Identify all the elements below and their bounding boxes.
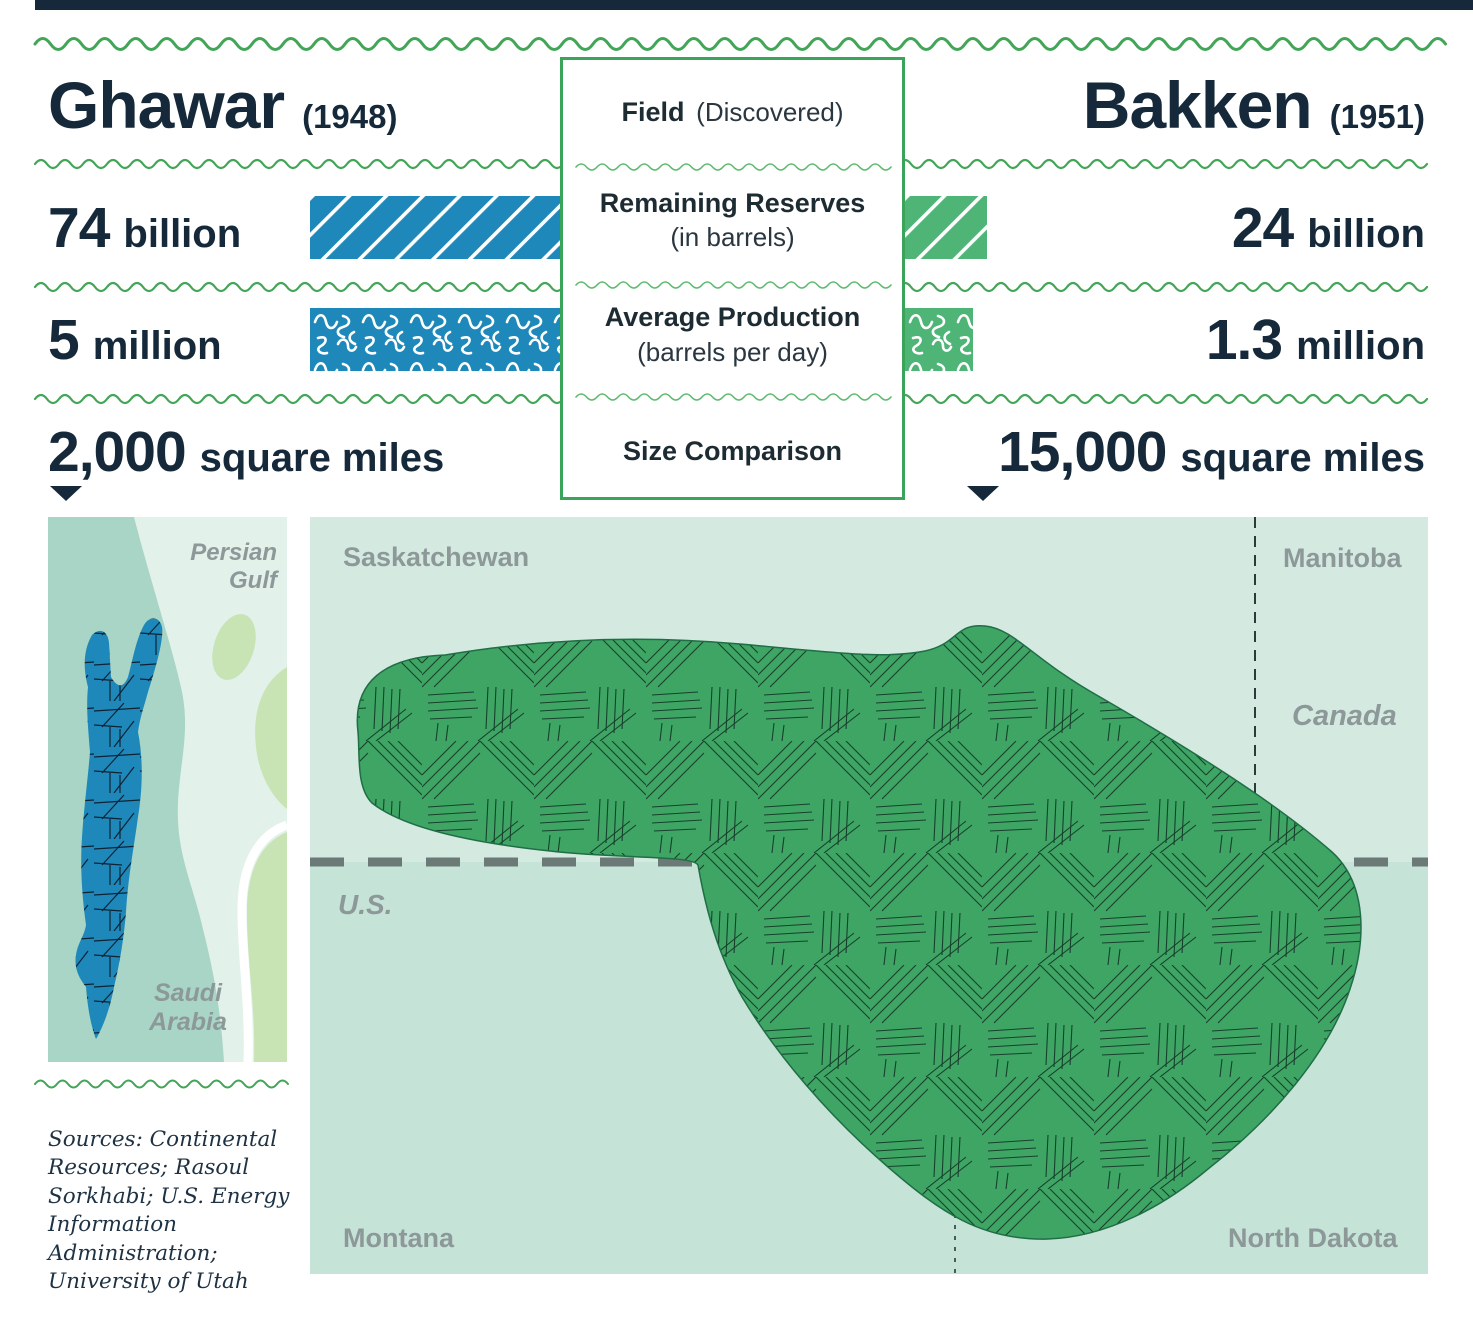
- bakken-reserves-bar: [905, 196, 987, 259]
- canada-label: Canada: [1292, 700, 1397, 733]
- ghawar-reserves-value: 74 billion: [48, 200, 241, 257]
- ghawar-size-value: 2,000 square miles: [48, 424, 444, 481]
- ghawar-year: (1948): [302, 98, 397, 136]
- us-label: U.S.: [338, 889, 392, 921]
- ghawar-reserves-bar: [310, 196, 560, 259]
- bakken-production-num: 1.3: [1206, 312, 1282, 369]
- ghawar-map-pointer-icon: [50, 486, 82, 501]
- bakken-reserves-value: 24 billion: [1232, 200, 1425, 257]
- manitoba-label: Manitoba: [1283, 543, 1402, 574]
- north-dakota-label: North Dakota: [1228, 1223, 1398, 1254]
- ghawar-production-value: 5 million: [48, 312, 222, 369]
- ghawar-reserves-num: 74: [48, 200, 109, 257]
- bakken-production-unit: million: [1296, 324, 1425, 369]
- persian-gulf-label: Persian Gulf: [190, 539, 277, 594]
- bakken-production-value: 1.3 million: [1206, 312, 1425, 369]
- bakken-size-num: 15,000: [998, 424, 1166, 481]
- legend-reserves-sub: (in barrels): [563, 223, 902, 253]
- montana-label: Montana: [343, 1223, 454, 1254]
- legend-wavy-3: [576, 389, 890, 405]
- saudi-arabia-label: Saudi Arabia: [118, 979, 258, 1037]
- wavy-divider-top: [35, 36, 1437, 52]
- bakken-map: Saskatchewan Manitoba Canada U.S. Montan…: [310, 517, 1428, 1274]
- infographic-canvas: Ghawar (1948) Bakken (1951) Field (Disco…: [0, 0, 1473, 1320]
- ghawar-size-unit: square miles: [200, 436, 445, 481]
- bakken-size-unit: square miles: [1180, 436, 1425, 481]
- legend-size-label: Size Comparison: [563, 436, 902, 467]
- bakken-reserves-unit: billion: [1307, 212, 1425, 257]
- ghawar-header: Ghawar (1948): [48, 72, 397, 138]
- legend-production-sub: (barrels per day): [563, 338, 902, 368]
- ghawar-map: Persian Gulf Saudi Arabia: [48, 517, 287, 1062]
- sources-note: Sources: Continental Resources; Rasoul S…: [48, 1126, 290, 1296]
- bakken-production-bar: [905, 308, 973, 371]
- bakken-size-value: 15,000 square miles: [998, 424, 1425, 481]
- bakken-year: (1951): [1330, 98, 1425, 136]
- wavy-divider-sources: [35, 1076, 287, 1092]
- ghawar-reserves-unit: billion: [123, 212, 241, 257]
- bakken-map-art: [310, 517, 1428, 1274]
- legend-field-bold: Field: [621, 97, 684, 127]
- ghawar-size-num: 2,000: [48, 424, 186, 481]
- legend-production-label: Average Production: [563, 302, 902, 333]
- bakken-reserves-num: 24: [1232, 200, 1293, 257]
- top-accent-bar: [35, 0, 1473, 10]
- bakken-map-pointer-icon: [967, 486, 999, 501]
- saskatchewan-label: Saskatchewan: [343, 542, 529, 573]
- ghawar-production-bar: [310, 308, 560, 371]
- ghawar-production-num: 5: [48, 312, 79, 369]
- ghawar-production-unit: million: [93, 324, 222, 369]
- legend-reserves-label: Remaining Reserves: [563, 188, 902, 219]
- legend-field-row: Field (Discovered): [563, 97, 902, 128]
- bakken-header: Bakken (1951): [1083, 72, 1425, 138]
- ghawar-title: Ghawar: [48, 72, 284, 138]
- legend-wavy-1: [576, 159, 890, 175]
- legend-wavy-2: [576, 277, 890, 293]
- bakken-title: Bakken: [1083, 72, 1312, 138]
